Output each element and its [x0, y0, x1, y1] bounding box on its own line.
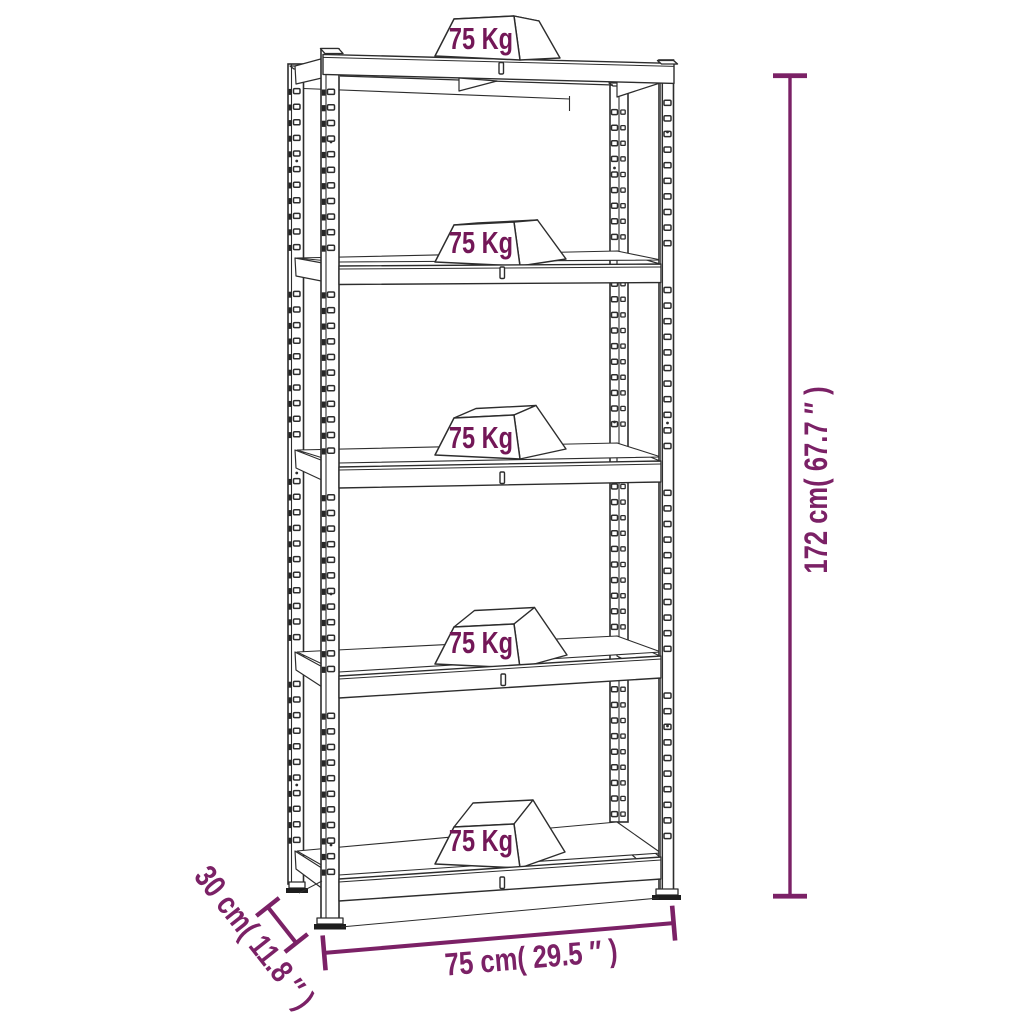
svg-text:75 Kg: 75 Kg: [449, 225, 513, 260]
svg-text:75 Kg: 75 Kg: [449, 823, 513, 858]
svg-text:75 Kg: 75 Kg: [449, 21, 513, 56]
svg-text:172 cm( 67.7 ″ ): 172 cm( 67.7 ″ ): [799, 386, 834, 573]
svg-text:75 Kg: 75 Kg: [449, 420, 513, 455]
svg-text:75 Kg: 75 Kg: [449, 625, 513, 660]
